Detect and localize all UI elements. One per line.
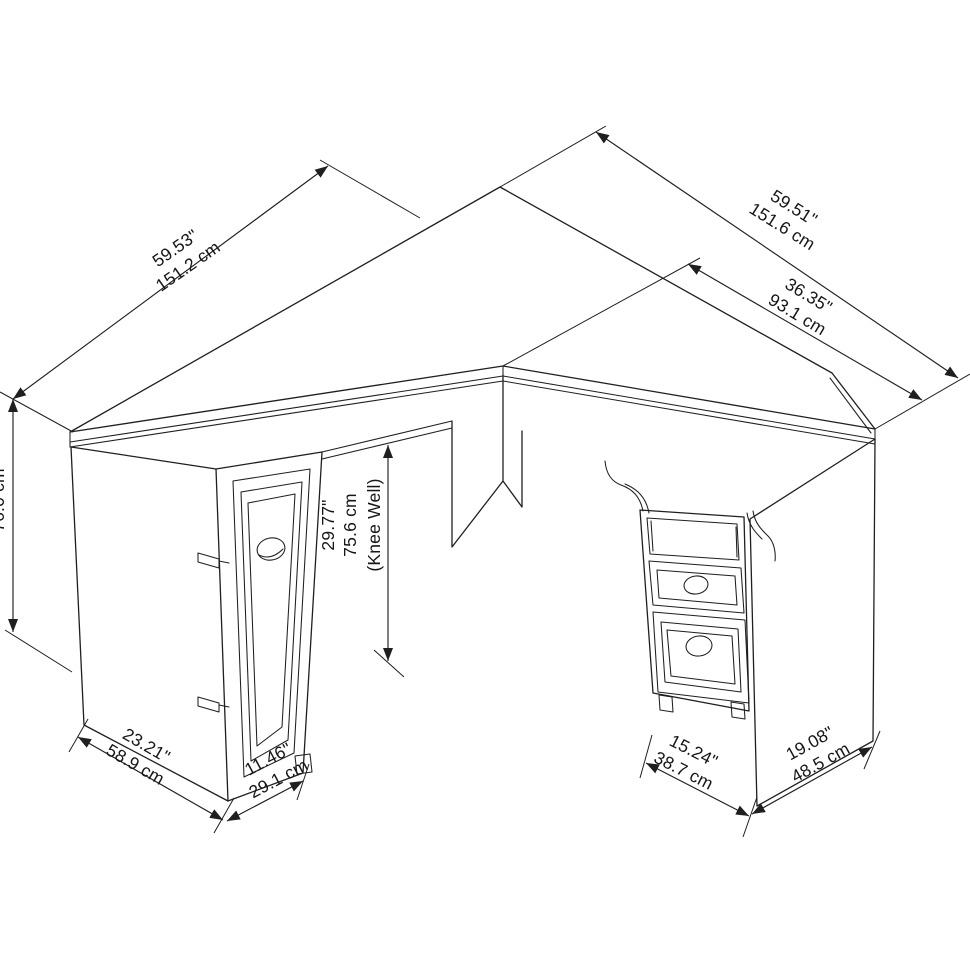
dim-right-top-depth-label: 36.35" 93.1 cm (765, 270, 841, 339)
drawer-2-panel-inner (667, 630, 735, 684)
extension-line (320, 160, 420, 218)
dim-note: (Knee Well) (364, 478, 384, 571)
door-cup-pull-icon (255, 535, 287, 562)
door-cup-pull-shadow (259, 549, 283, 557)
dim-cm: 75.6 cm (340, 493, 360, 557)
dimension-drawing-page: 59.53" 151.2 cm 59.51" 151.6 cm 36.35" 9… (0, 0, 970, 971)
dim-left-top-length: 59.53" 151.2 cm (0, 160, 420, 432)
dim-inches: 29.77" (318, 499, 338, 550)
dim-overall-height: 76.0 cm (0, 399, 72, 672)
extension-line (500, 126, 606, 187)
dim-right-top-depth: 36.35" 93.1 cm (503, 258, 922, 400)
extension-line (743, 797, 757, 837)
extension-line (875, 374, 970, 429)
desk-dimension-drawing: 59.53" 151.2 cm 59.51" 151.6 cm 36.35" 9… (0, 0, 970, 971)
left-corbel-bracket (605, 461, 643, 511)
desk-drawing (70, 187, 875, 806)
drawer-1-frame (649, 561, 744, 613)
extension-line (69, 719, 88, 752)
dim-right-end-depth: 19.08" 48.5 cm (752, 719, 880, 814)
dim-cm: 76.0 cm (0, 468, 8, 532)
extension-line (503, 258, 700, 366)
drawer-1-cup-pull-icon (683, 574, 709, 595)
extension-line (374, 650, 404, 677)
door-frame-panel (248, 494, 295, 746)
right-drawer-pedestal (605, 461, 749, 719)
dim-right-top-length: 59.51" 151.6 cm (500, 126, 970, 429)
dim-knee-well: 29.77" 75.6 cm (Knee Well) (318, 445, 404, 677)
drawer-1-panel (657, 570, 737, 605)
pedestal-foot-left (659, 695, 673, 712)
extension-line (640, 735, 652, 778)
extension-line (214, 798, 234, 833)
dim-left-door-width: 11.46" 29.1 cm (227, 735, 311, 821)
pedestal-front-face (640, 510, 749, 711)
extension-line (5, 630, 72, 672)
cubby-opening (647, 518, 739, 560)
drawer-2-cup-pull-icon (685, 634, 714, 657)
right-corbel-bracket (753, 511, 775, 561)
dim-pedestal-width-label: 15.24" 38.7 cm (651, 727, 727, 793)
corner-support-panel (452, 375, 522, 547)
door-hinge-top-icon (198, 553, 229, 568)
drawer-2-panel (661, 622, 741, 692)
dim-left-cabinet-depth: 23.21" 58.9 cm (69, 719, 234, 833)
desktop-edge-band-1 (70, 366, 875, 442)
desktop-top-outline (70, 187, 875, 432)
dim-left-top-length-label: 59.53" 151.2 cm (139, 219, 223, 296)
dim-right-end-depth-label: 19.08" 48.5 cm (777, 719, 853, 787)
door-frame-outer (233, 469, 310, 777)
dim-pedestal-width: 15.24" 38.7 cm (640, 727, 757, 837)
extension-line (0, 392, 73, 432)
knee-well-apron (322, 421, 452, 459)
